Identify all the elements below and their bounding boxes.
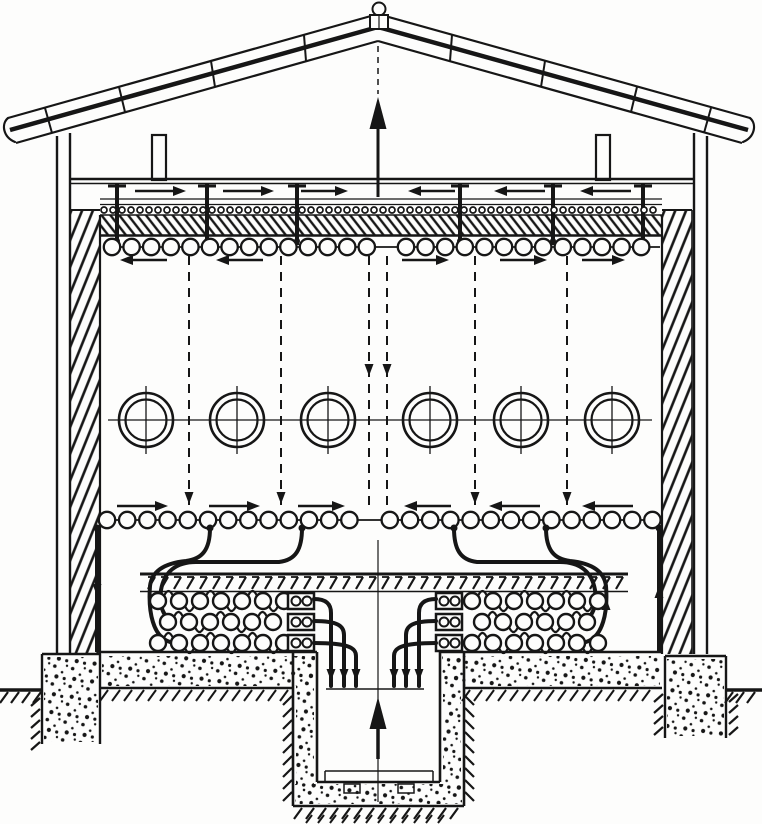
left-floor-slab: [102, 656, 315, 686]
heater-manifold-stub: [436, 635, 462, 651]
right-roof-strut: [596, 135, 610, 180]
diagram-canvas: [0, 0, 762, 824]
left-footing: [44, 657, 98, 742]
right-wall-masonry: [662, 210, 692, 654]
heater-manifold-stub: [288, 614, 314, 630]
pit-right-wall: [443, 656, 461, 802]
ceiling-insulation-strip: [100, 215, 662, 235]
right-footing: [667, 659, 724, 736]
right-floor-slab: [442, 656, 660, 686]
pit-floor-slab: [295, 784, 462, 804]
heater-manifold-stub: [288, 593, 314, 609]
ridge-finial-knob: [373, 3, 386, 16]
heater-manifold-stub: [436, 593, 462, 609]
left-roof-strut: [152, 135, 166, 180]
figure-ventilated-storage-cross-section: [0, 0, 762, 824]
heater-manifold-stub: [436, 614, 462, 630]
pit-left-wall: [296, 656, 314, 802]
heater-manifold-stub: [288, 635, 314, 651]
